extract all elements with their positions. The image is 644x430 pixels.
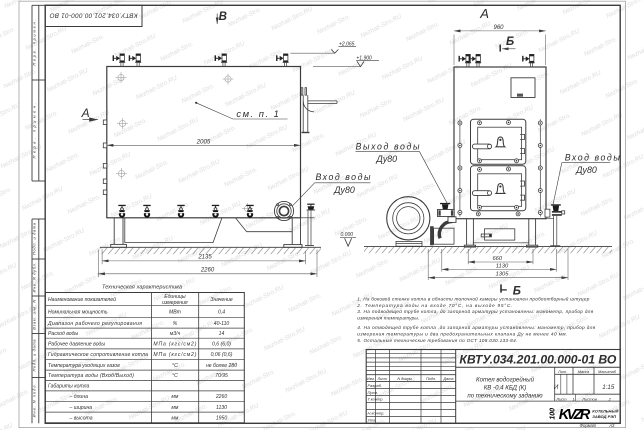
svg-text:Инв. N подл.: Инв. N подл. xyxy=(32,383,37,417)
svg-text:не более 280: не более 280 xyxy=(206,363,237,369)
svg-text:Подп.: Подп. xyxy=(426,377,436,381)
svg-text:1130: 1130 xyxy=(216,405,227,411)
svg-text:Т.контр.: Т.контр. xyxy=(368,397,384,402)
svg-text:мм: мм xyxy=(171,394,178,400)
svg-text:660: 660 xyxy=(492,256,502,262)
svg-text:Лист: Лист xyxy=(555,396,567,401)
svg-text:%: % xyxy=(173,321,178,327)
svg-text:100: 100 xyxy=(549,408,556,420)
svg-text:КОТЕЛЬНЫЙ: КОТЕЛЬНЫЙ xyxy=(592,409,618,414)
svg-text:измерения температуры и два пр: измерения температуры и два предохраните… xyxy=(357,331,567,336)
svg-text:N докум.: N докум. xyxy=(397,377,412,381)
svg-text:Гидравлическое сопротивление к: Гидравлическое сопротивление котла xyxy=(48,352,148,358)
svg-text:Листов: Листов xyxy=(581,396,597,401)
svg-text:КВТУ.034.201.00.000-01 ВО: КВТУ.034.201.00.000-01 ВО xyxy=(459,352,617,366)
svg-text:Габариты котла: Габариты котла xyxy=(48,384,89,390)
svg-text:Значение: Значение xyxy=(210,297,233,303)
svg-text:Подп. и дата: Подп. и дата xyxy=(32,222,37,255)
svg-text:1305: 1305 xyxy=(496,272,510,278)
svg-text:– длина: – длина xyxy=(69,394,89,400)
svg-text:ЗАВОД РЭП: ЗАВОД РЭП xyxy=(592,414,616,419)
svg-text:измерения температуры.: измерения температуры. xyxy=(357,315,419,320)
svg-text:1: 1 xyxy=(572,396,574,401)
svg-text:Выход воды: Выход воды xyxy=(356,142,421,152)
svg-text:Разраб.: Разраб. xyxy=(368,383,382,388)
svg-text:МВт: МВт xyxy=(169,309,181,315)
svg-text:КВТУ.034.201.00.000-01 ВО: КВТУ.034.201.00.000-01 ВО xyxy=(50,12,138,19)
svg-text:40-110: 40-110 xyxy=(214,321,230,327)
svg-text:А3: А3 xyxy=(608,423,615,428)
svg-text:4. На отводящей трубе котла ,: 4. На отводящей трубе котла ,до запорной… xyxy=(357,324,595,330)
svg-text:– высота: – высота xyxy=(69,415,93,421)
svg-text:Лист: Лист xyxy=(377,377,388,381)
svg-text:Масса: Масса xyxy=(578,370,589,374)
svg-text:МПа (кгс/см2): МПа (кгс/см2) xyxy=(153,352,196,358)
svg-text:Расход воды: Расход воды xyxy=(48,331,78,337)
svg-text:МПа (кгс/см2): МПа (кгс/см2) xyxy=(153,342,196,348)
svg-text:Рабочее давление воды: Рабочее давление воды xyxy=(48,342,105,348)
svg-text:А: А xyxy=(81,106,90,120)
svg-text:960: 960 xyxy=(493,25,504,31)
svg-text:Взам. инв. N: Взам. инв. N xyxy=(32,300,37,330)
svg-text:2260: 2260 xyxy=(200,268,215,274)
svg-text:2135: 2135 xyxy=(197,255,212,261)
svg-text:1950: 1950 xyxy=(216,415,227,421)
svg-text:5. Остальные технические треб: 5. Остальные технические требования по О… xyxy=(357,338,517,343)
svg-text:Изм.: Изм. xyxy=(367,377,375,381)
svg-text:по техническому заданию: по техническому заданию xyxy=(467,393,543,400)
svg-text:Ду80: Ду80 xyxy=(575,165,597,175)
svg-text:Единицы: Единицы xyxy=(164,294,186,300)
svg-text:Формат: Формат xyxy=(580,423,597,428)
svg-text:КВ -0,4 КБД (К): КВ -0,4 КБД (К) xyxy=(484,385,527,392)
svg-text:2. Температура воды на входе: 2. Температура воды на входе 70°С, на вы… xyxy=(356,303,512,308)
svg-text:°С: °С xyxy=(172,363,178,369)
svg-text:В: В xyxy=(219,11,227,23)
svg-text:Температура воды (Вход/Выход): Температура воды (Вход/Выход) xyxy=(48,373,134,379)
svg-text:3. На подводящей трубе котла,: 3. На подводящей трубе котла, до запорно… xyxy=(357,308,593,314)
svg-text:Техническая характеристика: Техническая характеристика xyxy=(102,285,182,291)
svg-text:измерения: измерения xyxy=(162,300,188,306)
svg-text:Пров.: Пров. xyxy=(368,390,379,395)
svg-text:м3/ч: м3/ч xyxy=(170,331,181,337)
svg-text:0,6 (6,0): 0,6 (6,0) xyxy=(212,342,231,348)
svg-text:Б: Б xyxy=(506,36,514,48)
svg-text:14: 14 xyxy=(219,331,225,337)
svg-text:Температура уходящих газов: Температура уходящих газов xyxy=(48,363,120,369)
svg-text:Ду80: Ду80 xyxy=(376,154,398,164)
svg-text:70/95: 70/95 xyxy=(215,373,228,379)
svg-text:Подп. и дата: Подп. и дата xyxy=(32,339,37,372)
svg-text:2005: 2005 xyxy=(196,139,211,146)
svg-text:А: А xyxy=(479,6,489,21)
svg-text:мм: мм xyxy=(171,405,178,411)
svg-text:И: И xyxy=(554,384,559,391)
svg-text:Номинальная мощность: Номинальная мощность xyxy=(48,309,108,315)
svg-text:Дата: Дата xyxy=(442,377,453,381)
svg-text:°С: °С xyxy=(172,373,178,379)
svg-text:Утв.: Утв. xyxy=(368,418,377,423)
svg-text:– ширина: – ширина xyxy=(69,405,93,411)
svg-text:Масштаб: Масштаб xyxy=(598,370,617,374)
svg-text:Котел водогрейный: Котел водогрейный xyxy=(476,377,535,384)
svg-text:2260: 2260 xyxy=(215,394,227,400)
svg-text:1130: 1130 xyxy=(496,263,509,269)
svg-text:Наименование показателей: Наименование показателей xyxy=(48,296,116,303)
svg-text:KVZR: KVZR xyxy=(559,407,591,423)
svg-text:1:15: 1:15 xyxy=(602,384,615,391)
svg-text:0,06 (0,6): 0,06 (0,6) xyxy=(211,352,233,358)
svg-text:1. На боковой стенке котла в: 1. На боковой стенке котла в области топ… xyxy=(357,296,589,302)
svg-text:Инв. N дубл.: Инв. N дубл. xyxy=(32,263,37,293)
svg-text:0,4: 0,4 xyxy=(218,309,225,315)
svg-text:Н.контр.: Н.контр. xyxy=(368,411,385,416)
svg-text:мм: мм xyxy=(171,415,178,421)
svg-text:Ду80: Ду80 xyxy=(333,185,355,195)
svg-text:Диапазон рабочего регулировани: Диапазон рабочего регулирования xyxy=(47,321,142,327)
svg-text:Лит.: Лит. xyxy=(557,370,567,374)
